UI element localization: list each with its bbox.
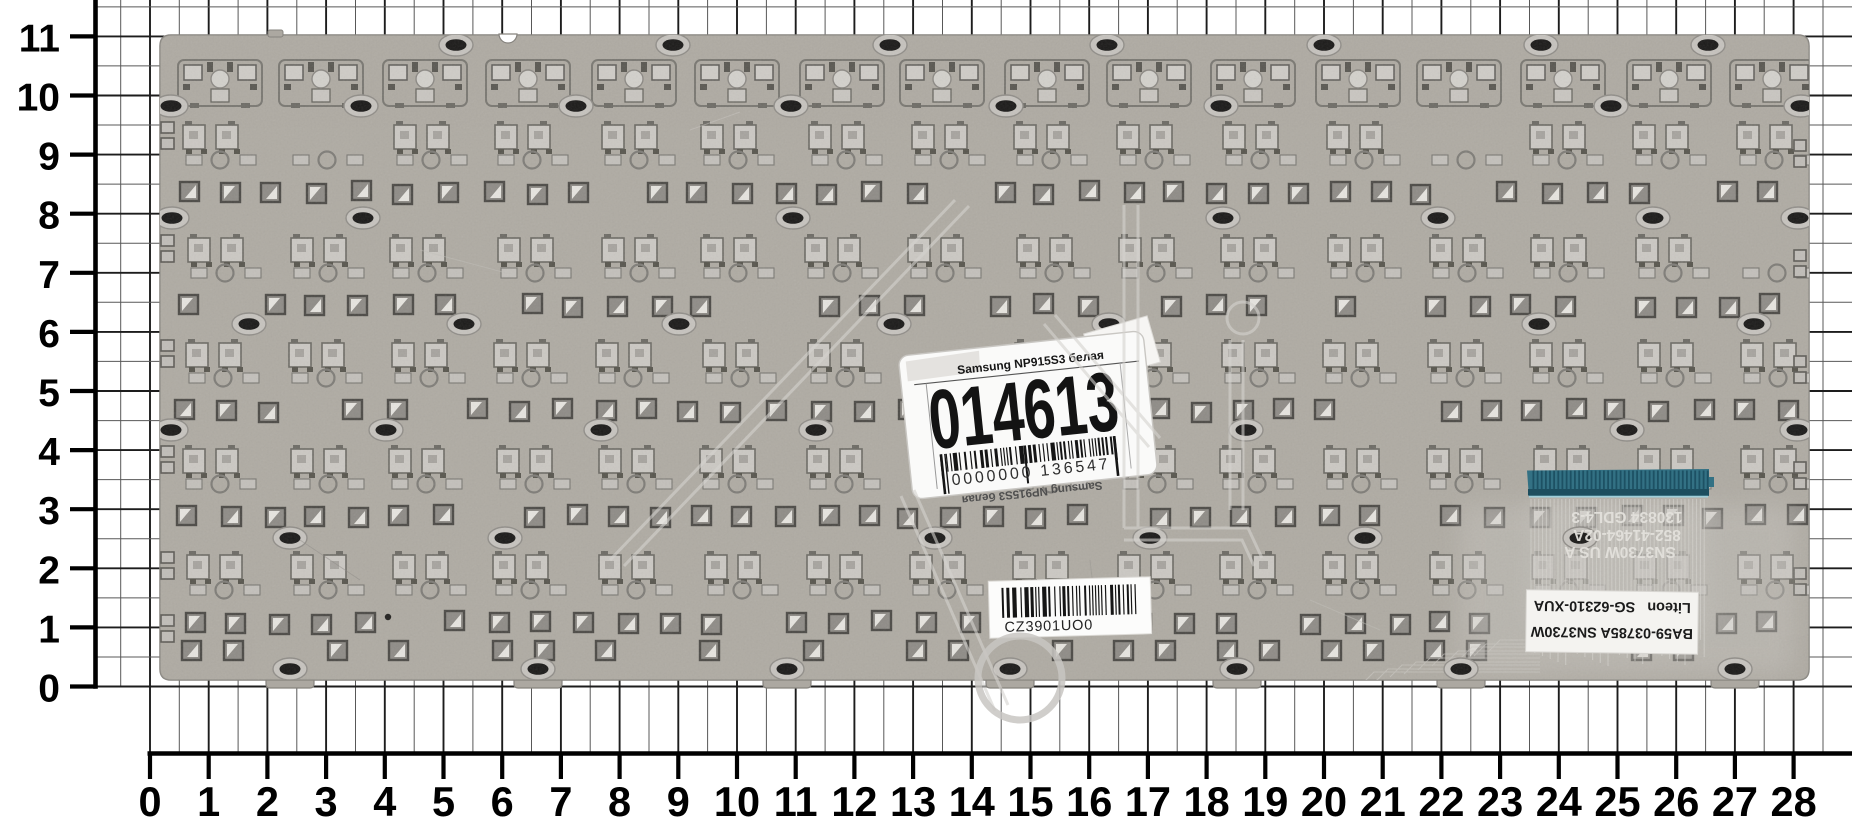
svg-text:3: 3 [38, 490, 60, 533]
svg-text:15: 15 [1007, 778, 1053, 825]
svg-text:26: 26 [1653, 778, 1699, 825]
svg-text:8: 8 [38, 195, 60, 238]
svg-text:22: 22 [1418, 778, 1464, 825]
svg-text:1: 1 [38, 608, 60, 651]
svg-text:BA59-03785A SN3730W: BA59-03785A SN3730W [1530, 623, 1693, 641]
svg-text:14: 14 [949, 778, 995, 825]
svg-text:Liteon SG-62310-XUA: Liteon SG-62310-XUA [1533, 597, 1691, 615]
svg-text:11: 11 [774, 778, 818, 825]
svg-text:5: 5 [38, 372, 60, 415]
svg-text:SN3730W US A: SN3730W US A [1564, 543, 1675, 560]
svg-text:130834 GDL4-3: 130834 GDL4-3 [1571, 508, 1683, 525]
svg-text:18: 18 [1184, 778, 1230, 825]
svg-text:27: 27 [1712, 778, 1758, 825]
svg-text:4: 4 [38, 431, 60, 474]
svg-text:9: 9 [38, 136, 60, 179]
svg-text:16: 16 [1066, 778, 1112, 825]
svg-text:13: 13 [890, 778, 936, 825]
svg-text:0: 0 [38, 668, 60, 711]
svg-text:7: 7 [38, 254, 60, 297]
svg-text:25: 25 [1594, 778, 1640, 825]
svg-text:9: 9 [667, 778, 690, 825]
svg-text:10: 10 [17, 77, 60, 120]
svg-text:7: 7 [549, 778, 572, 825]
svg-text:28: 28 [1771, 778, 1817, 825]
svg-text:3: 3 [315, 778, 338, 825]
svg-text:11: 11 [19, 17, 60, 60]
svg-text:10: 10 [714, 778, 760, 825]
svg-text:23: 23 [1477, 778, 1523, 825]
svg-text:6: 6 [491, 778, 514, 825]
svg-text:19: 19 [1242, 778, 1288, 825]
svg-text:1: 1 [197, 778, 220, 825]
svg-text:5: 5 [432, 778, 455, 825]
svg-text:0: 0 [138, 778, 161, 825]
svg-text:17: 17 [1125, 778, 1171, 825]
svg-text:2: 2 [38, 549, 60, 592]
svg-text:2: 2 [256, 778, 279, 825]
svg-text:12: 12 [831, 778, 877, 825]
svg-text:852-41464-02A: 852-41464-02A [1573, 526, 1681, 543]
svg-text:4: 4 [373, 778, 396, 825]
svg-text:24: 24 [1536, 778, 1582, 825]
svg-text:20: 20 [1301, 778, 1347, 825]
svg-text:21: 21 [1360, 778, 1406, 825]
svg-text:6: 6 [38, 313, 60, 356]
svg-text:8: 8 [608, 778, 631, 825]
